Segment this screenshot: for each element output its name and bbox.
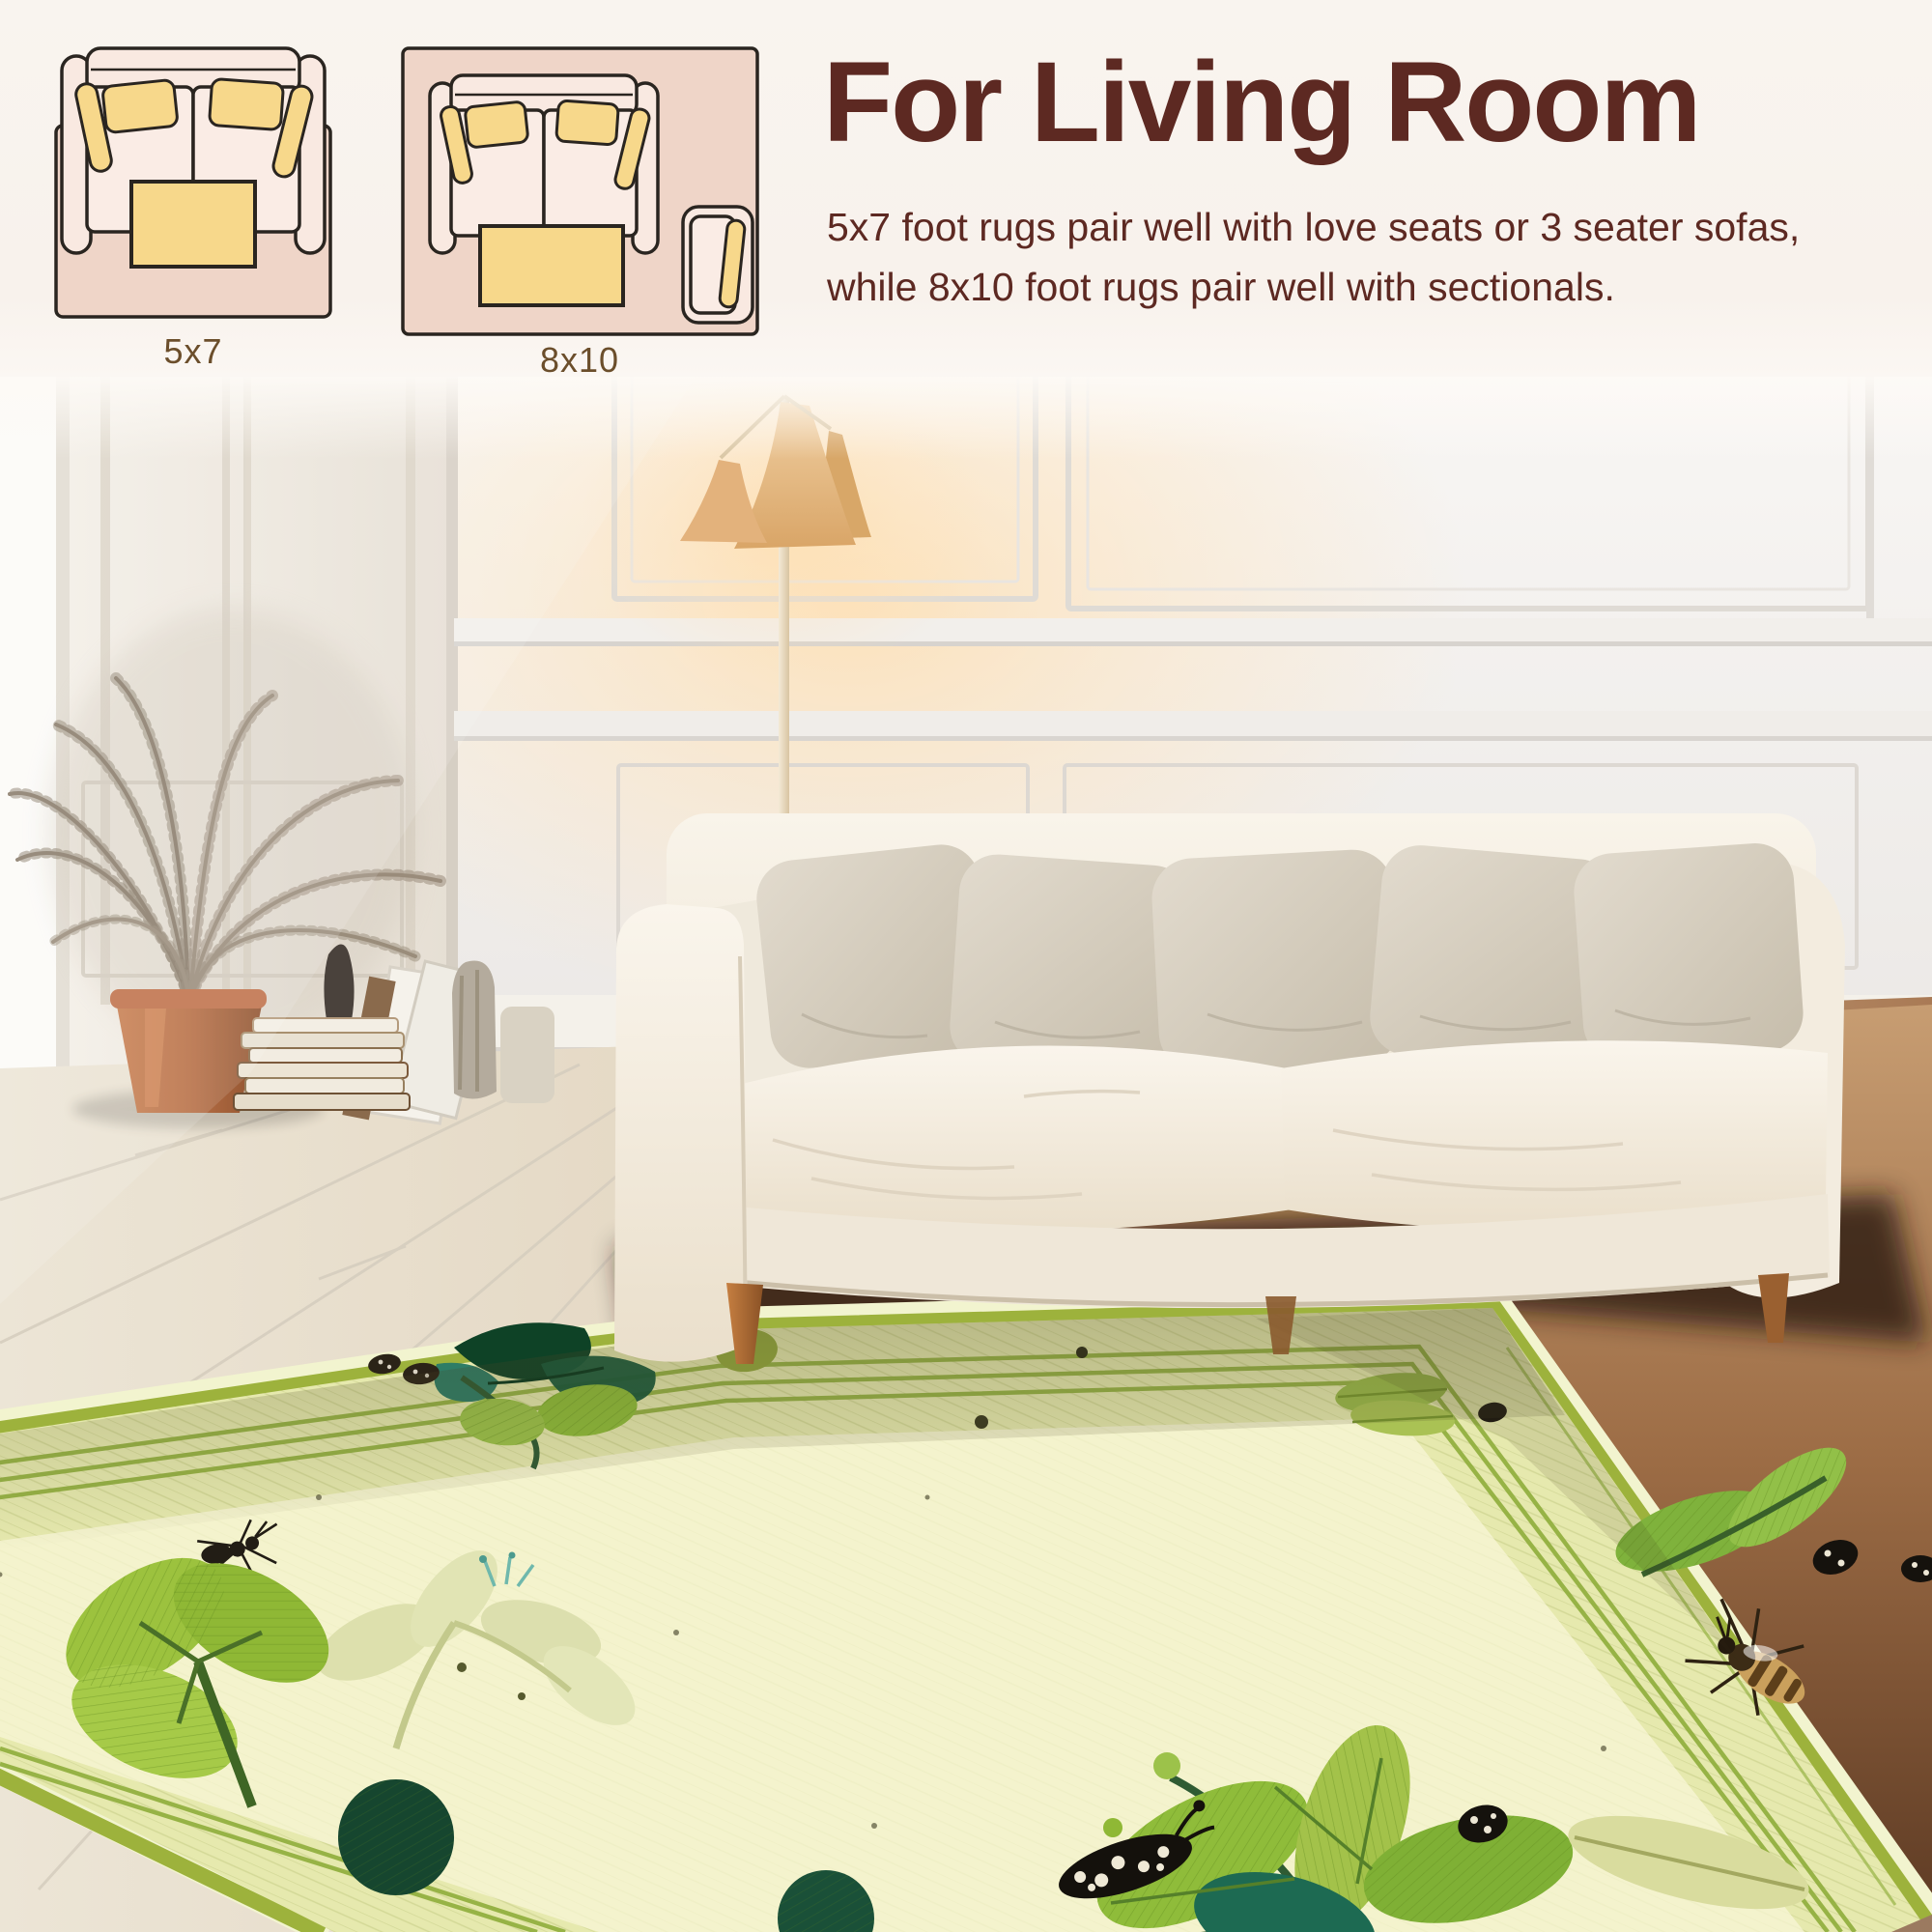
- diagram-coffee-table: [131, 182, 255, 267]
- diagram-armchair: [683, 207, 753, 323]
- living-room-photo: [0, 377, 1932, 1932]
- rug-8x10-diagram-graphic: [399, 27, 761, 367]
- living-room-scene-graphic: [0, 377, 1932, 1932]
- rug-size-label-5x7: 5x7: [97, 331, 290, 372]
- rug-5x7-diagram-graphic: [48, 33, 338, 323]
- cream-vase: [500, 1007, 554, 1103]
- rug-5x7-layout-diagram: [48, 33, 338, 323]
- page-title: For Living Room: [823, 37, 1905, 168]
- sofa: [614, 813, 1845, 1364]
- product-infographic: 5x7: [0, 0, 1932, 1932]
- header-band: 5x7: [0, 0, 1932, 377]
- rug-8x10-layout-diagram: [399, 27, 761, 367]
- top-fade: [0, 377, 1932, 459]
- sofa-pillow: [1572, 840, 1806, 1064]
- rug-size-label-8x10: 8x10: [483, 340, 676, 381]
- page-description: 5x7 foot rugs pair well with love seats …: [827, 198, 1885, 317]
- sofa-seat-cushion: [736, 1045, 1293, 1232]
- sofa-pillow: [1150, 848, 1402, 1075]
- diagram-coffee-table: [480, 226, 623, 305]
